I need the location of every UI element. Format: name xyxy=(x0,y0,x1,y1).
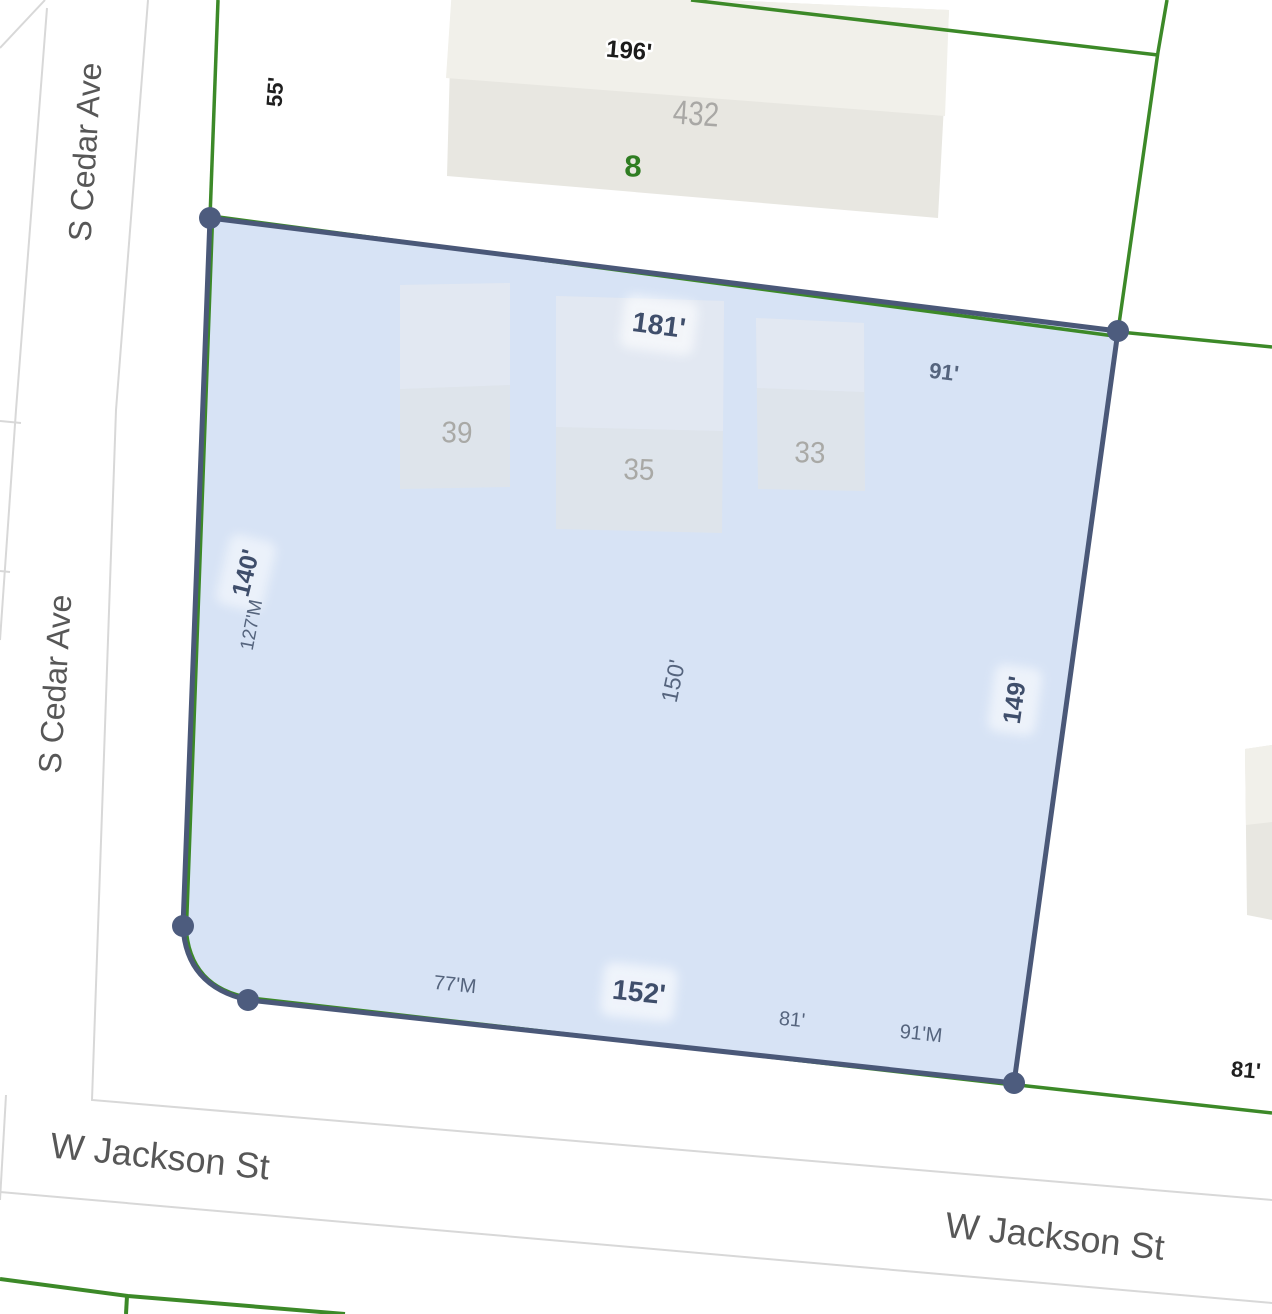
svg-text:81': 81' xyxy=(1230,1056,1262,1083)
svg-text:91'M: 91'M xyxy=(899,1021,944,1047)
svg-text:152': 152' xyxy=(611,974,667,1010)
svg-text:77'M: 77'M xyxy=(433,972,478,998)
svg-text:33: 33 xyxy=(794,436,826,470)
svg-text:39: 39 xyxy=(441,416,473,450)
svg-text:81': 81' xyxy=(778,1008,806,1033)
svg-text:196': 196' xyxy=(605,36,653,67)
svg-text:35: 35 xyxy=(623,453,655,487)
svg-text:55': 55' xyxy=(261,76,288,107)
svg-text:432: 432 xyxy=(672,93,721,134)
svg-text:8: 8 xyxy=(624,149,641,184)
svg-text:91': 91' xyxy=(928,358,961,386)
